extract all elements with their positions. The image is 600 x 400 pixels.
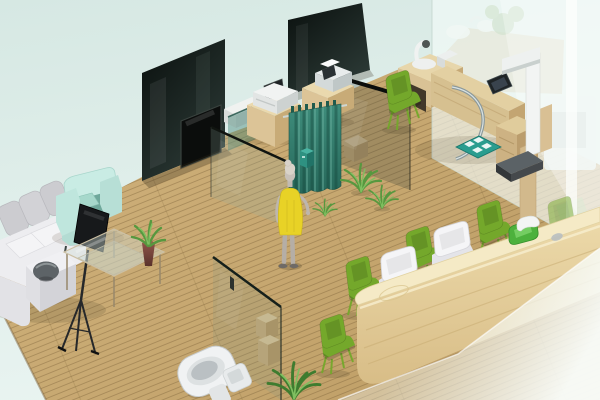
person-dress — [278, 188, 302, 235]
scene-canvas — [0, 0, 600, 400]
stadiometer-pole — [526, 53, 540, 157]
isometric-clinic-render — [0, 0, 600, 400]
storage-bin — [300, 148, 314, 168]
privacy-curtain-group — [283, 99, 347, 196]
